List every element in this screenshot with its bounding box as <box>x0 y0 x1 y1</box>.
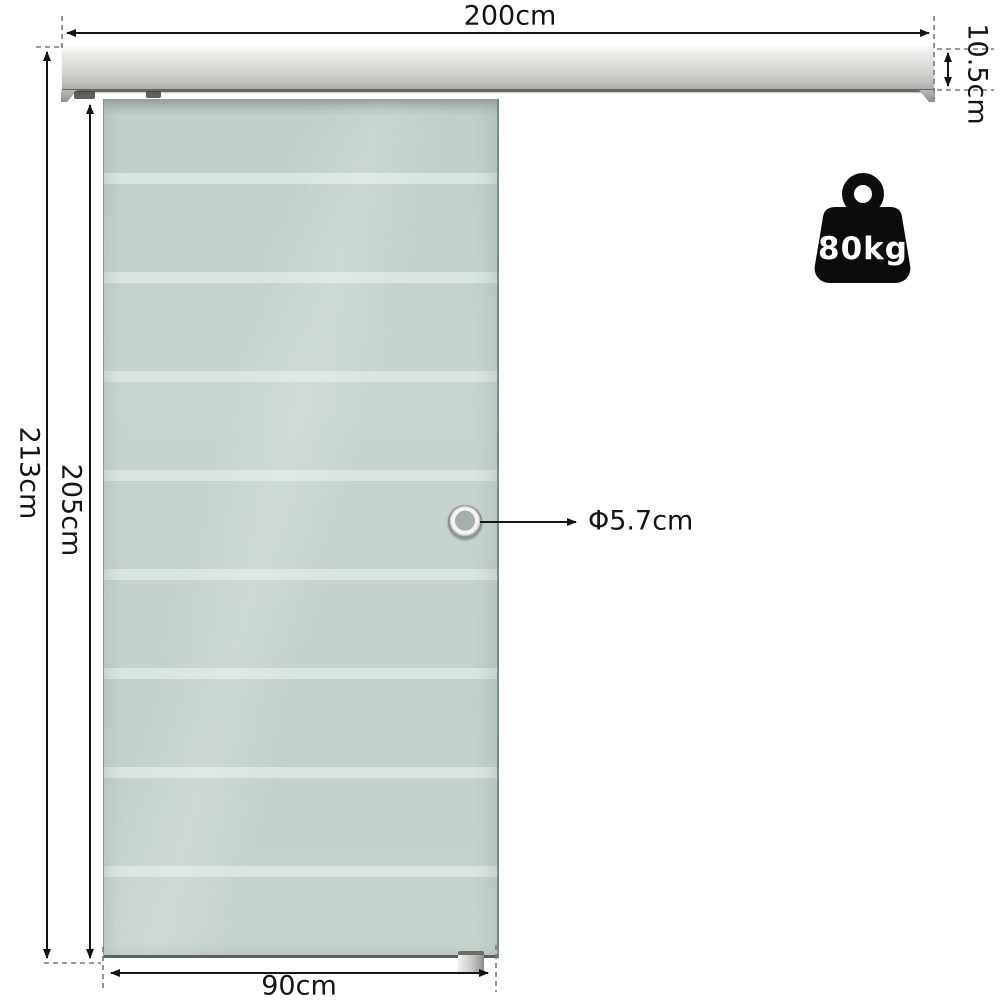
product-dimension-diagram: 80kg 200cm 10.5cm 213cm 205 <box>0 0 1000 1000</box>
floor-guide <box>458 951 484 972</box>
glass-door-panel <box>103 99 499 958</box>
sliding-track <box>62 46 934 92</box>
label-track-height: 10.5cm <box>962 23 993 124</box>
track-end-cap-right <box>919 90 935 102</box>
label-door-height: 205cm <box>56 464 87 557</box>
label-track-width: 200cm <box>464 1 557 32</box>
door-handle <box>448 505 482 539</box>
label-door-width: 90cm <box>261 971 337 1000</box>
roller-hanger-clip <box>146 91 161 98</box>
roller-hanger-clip <box>74 91 95 99</box>
weight-ring <box>848 179 878 209</box>
max-load-label: 80kg <box>802 231 924 267</box>
label-overall-height: 213cm <box>14 427 45 520</box>
kettlebell-weight-icon <box>802 164 924 289</box>
label-handle-diameter: Φ5.7cm <box>588 506 693 537</box>
